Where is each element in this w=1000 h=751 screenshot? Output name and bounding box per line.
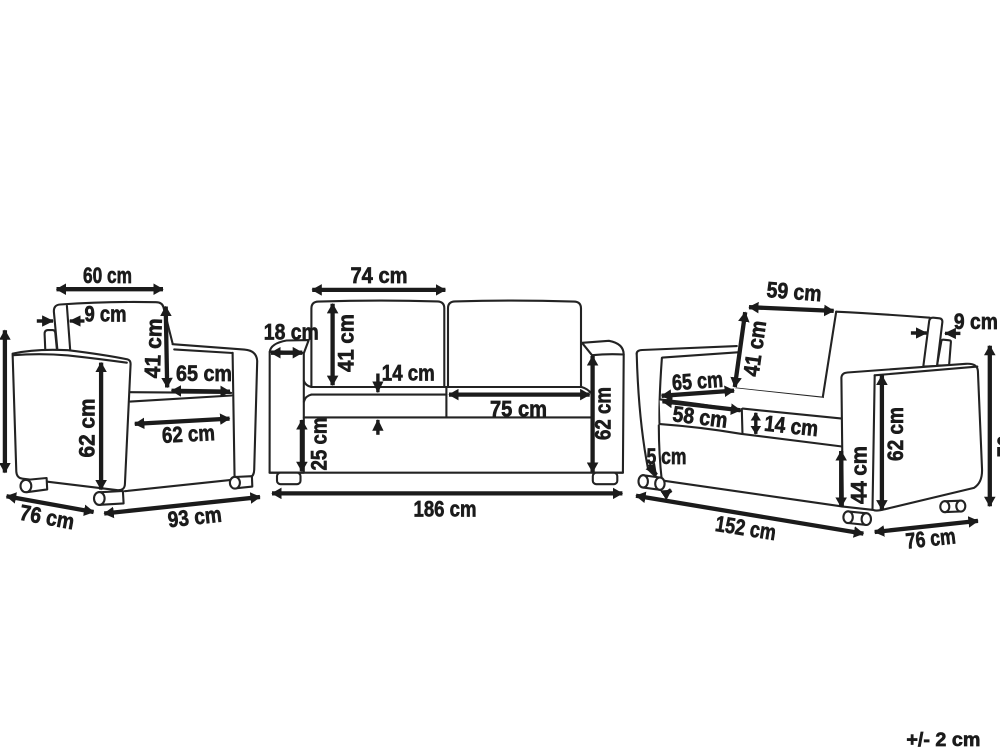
svg-text:76 cm: 76 cm <box>993 403 1000 457</box>
svg-text:14 cm: 14 cm <box>382 361 435 386</box>
svg-text:25 cm: 25 cm <box>307 418 332 471</box>
svg-text:41 cm: 41 cm <box>140 318 167 379</box>
svg-text:5 cm: 5 cm <box>647 444 687 469</box>
svg-text:65 cm: 65 cm <box>671 367 724 395</box>
svg-text:74 cm: 74 cm <box>351 263 408 288</box>
svg-text:44 cm: 44 cm <box>847 446 872 504</box>
svg-text:+/- 2 cm: +/- 2 cm <box>906 730 980 751</box>
svg-text:75 cm: 75 cm <box>490 397 547 422</box>
svg-text:18 cm: 18 cm <box>264 320 319 345</box>
svg-text:41 cm: 41 cm <box>334 314 359 372</box>
svg-text:62 cm: 62 cm <box>883 407 908 461</box>
svg-text:9 cm: 9 cm <box>85 302 127 327</box>
svg-text:62 cm: 62 cm <box>75 399 100 458</box>
svg-text:62 cm: 62 cm <box>591 387 616 440</box>
svg-text:186 cm: 186 cm <box>414 497 477 522</box>
svg-text:62 cm: 62 cm <box>161 420 215 448</box>
svg-text:60 cm: 60 cm <box>83 263 132 288</box>
svg-text:65 cm: 65 cm <box>176 361 232 386</box>
svg-text:9 cm: 9 cm <box>954 309 998 334</box>
svg-text:59 cm: 59 cm <box>766 277 823 306</box>
